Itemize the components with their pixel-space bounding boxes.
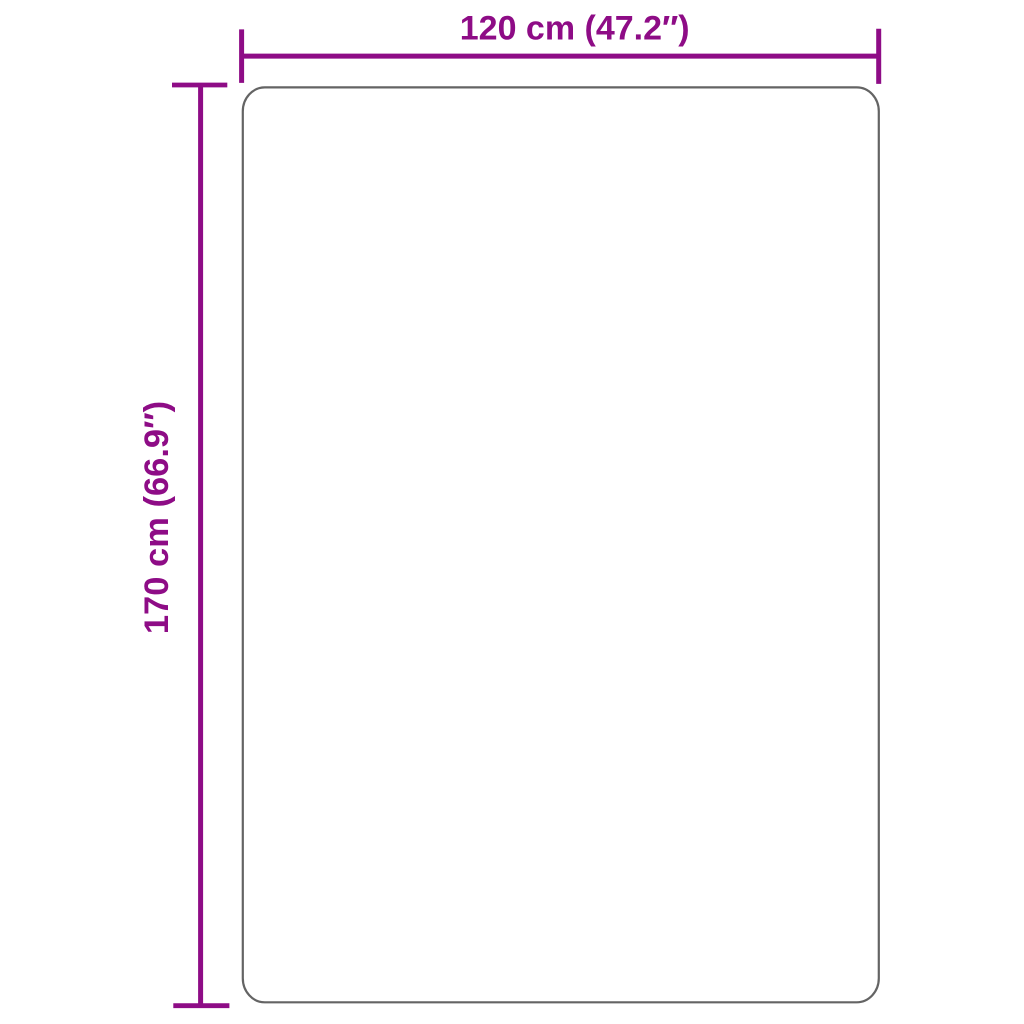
- svg-text:170 cm (66.9″): 170 cm (66.9″): [138, 401, 176, 634]
- svg-text:120 cm (47.2″): 120 cm (47.2″): [460, 10, 690, 48]
